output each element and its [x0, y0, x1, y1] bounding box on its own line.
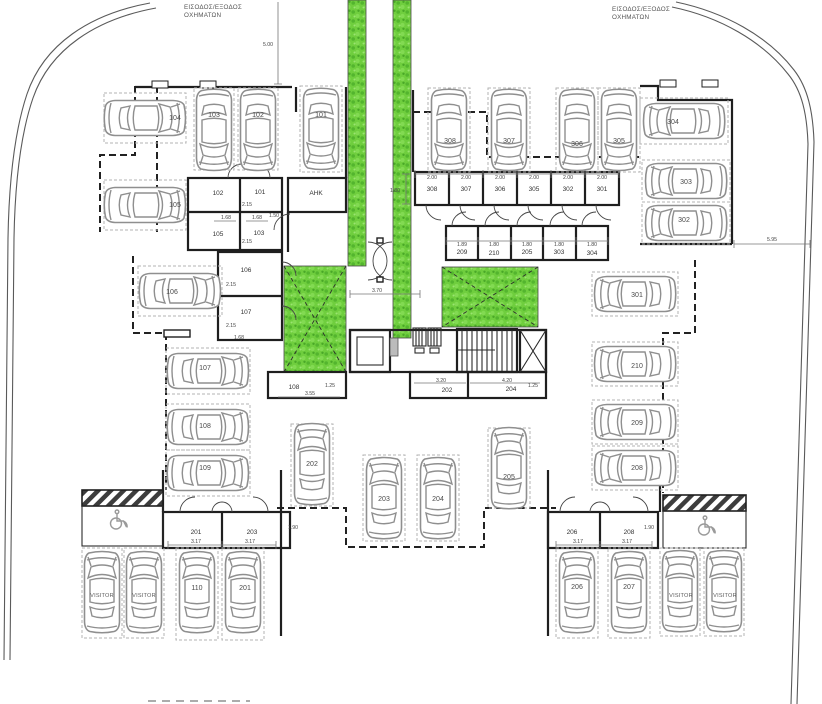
spot-label-102: 102 — [252, 112, 264, 119]
car-201 — [226, 552, 261, 633]
dim-1.90-2: 1.90 — [644, 525, 654, 531]
room-label-ahk: ΑΗΚ — [309, 190, 323, 197]
dim-1.80-1: 1.80 — [489, 242, 499, 248]
green-strip-left — [348, 0, 366, 266]
dim-5.00: 5.00 — [263, 42, 273, 48]
room-label-209: 209 — [457, 249, 468, 256]
dim-3.17-2: 3.17 — [245, 539, 255, 545]
car-106 — [139, 274, 220, 309]
doors — [180, 164, 648, 512]
spot-label-208: 208 — [631, 465, 643, 472]
entrance-label-right-2: ΟΧΗΜΑΤΩΝ — [612, 14, 649, 21]
dim-1.68-1: 1.68 — [221, 215, 231, 221]
car-304 — [644, 104, 725, 139]
wheelchair-icon-right — [699, 516, 716, 535]
green-courtyard-left — [284, 266, 346, 372]
car-110 — [180, 552, 215, 633]
room-label-101: 101 — [255, 189, 266, 196]
car-308 — [432, 89, 467, 170]
dim-2.00-4: 2.00 — [529, 175, 539, 181]
wheelchair-icon-left — [111, 510, 128, 529]
spot-label-visitor-4: VISITOR — [713, 593, 737, 599]
room-label-206: 206 — [567, 529, 578, 536]
dim-3.70: 3.70 — [372, 288, 382, 294]
dim-3.17-1: 3.17 — [191, 539, 201, 545]
spot-label-106: 106 — [166, 289, 178, 296]
dim-2.00-6: 2.00 — [597, 175, 607, 181]
room-label-105: 105 — [213, 231, 224, 238]
dim-2.15-2: 2.15 — [242, 239, 252, 245]
hatched-wall-left — [82, 490, 163, 506]
spot-label-308: 308 — [444, 138, 456, 145]
spot-label-204: 204 — [432, 496, 444, 503]
dim-2.00-1: 2.00 — [427, 175, 437, 181]
room-label-204: 204 — [506, 386, 517, 393]
car-205 — [492, 428, 527, 509]
spot-label-108: 108 — [199, 423, 211, 430]
spot-label-307: 307 — [503, 138, 515, 145]
spot-label-207: 207 — [623, 584, 635, 591]
dim-2.00-5: 2.00 — [563, 175, 573, 181]
spot-label-110: 110 — [191, 585, 202, 592]
car-visitor-3 — [663, 551, 698, 632]
spot-label-205: 205 — [503, 474, 515, 481]
dim-1.50: 1.50 — [269, 213, 279, 219]
stair-core — [350, 328, 546, 372]
car-109 — [167, 456, 248, 491]
meter-boxes — [413, 328, 441, 353]
dim-1.68-3: 1.68 — [234, 335, 244, 341]
room-label-205: 205 — [522, 249, 533, 256]
room-label-106: 106 — [241, 267, 252, 274]
room-label-103: 103 — [254, 230, 265, 237]
room-label-102: 102 — [213, 190, 224, 197]
room-label-303: 303 — [554, 249, 565, 256]
elevator-jamb — [390, 338, 398, 356]
dim-1.89: 1.89 — [457, 242, 467, 248]
dim-1.90-1: 1.90 — [288, 525, 298, 531]
room-label-305: 305 — [529, 186, 540, 193]
dim-2.15-1: 2.15 — [242, 202, 252, 208]
hatched-walls — [82, 490, 746, 548]
room-label-210: 210 — [489, 250, 500, 257]
dim-2.00-2: 2.00 — [461, 175, 471, 181]
dim-1.80-left: 1.80 — [390, 188, 400, 194]
car-206 — [560, 552, 595, 633]
dim-3.17-4: 3.17 — [622, 539, 632, 545]
car-visitor-4 — [707, 551, 742, 632]
spot-label-visitor-2: VISITOR — [132, 593, 156, 599]
elevator — [350, 330, 390, 372]
spot-label-306: 306 — [571, 141, 583, 148]
spot-label-203: 203 — [378, 496, 390, 503]
room-label-202: 202 — [442, 387, 453, 394]
room-label-302: 302 — [563, 186, 574, 193]
dim-2.00-3: 2.00 — [495, 175, 505, 181]
spot-label-209: 209 — [631, 420, 643, 427]
spot-label-109: 109 — [199, 465, 211, 472]
room-label-304: 304 — [587, 250, 598, 257]
room-label-306: 306 — [495, 186, 506, 193]
spot-label-visitor-1: VISITOR — [90, 593, 114, 599]
spot-label-103: 103 — [208, 112, 220, 119]
pedestrian-gate — [368, 238, 392, 282]
dim-1.25-2: 1.25 — [528, 383, 538, 389]
spot-label-104: 104 — [169, 115, 181, 122]
car-207 — [612, 552, 647, 633]
floor-plan-sheet: ΕΙΣΟΔΟΣ/ΕΞΟΔΟΣ ΟΧΗΜΑΤΩΝ ΕΙΣΟΔΟΣ/ΕΞΟΔΟΣ Ο… — [0, 0, 822, 704]
dim-1.68-2: 1.68 — [252, 215, 262, 221]
room-label-208: 208 — [624, 529, 635, 536]
room-label-107: 107 — [241, 309, 252, 316]
spot-label-visitor-3: VISITOR — [669, 593, 693, 599]
room-label-301: 301 — [597, 186, 608, 193]
entrance-label-left-1: ΕΙΣΟΔΟΣ/ΕΞΟΔΟΣ — [184, 4, 242, 11]
dim-3.17-3: 3.17 — [573, 539, 583, 545]
green-strip-right — [393, 0, 411, 338]
car-306 — [560, 89, 595, 170]
car-101 — [304, 88, 339, 169]
spot-label-210: 210 — [631, 363, 643, 370]
spot-label-107: 107 — [199, 365, 211, 372]
entrance-label-left-2: ΟΧΗΜΑΤΩΝ — [184, 12, 221, 19]
car-102 — [241, 89, 276, 170]
hatched-wall-right — [663, 495, 746, 511]
car-305 — [602, 89, 637, 170]
dim-3.55: 3.55 — [305, 391, 315, 397]
spot-label-201: 201 — [239, 585, 251, 592]
spot-label-105: 105 — [169, 202, 181, 209]
dim-1.25-1: 1.25 — [325, 383, 335, 389]
car-103 — [197, 89, 232, 170]
dim-2.15-4: 2.15 — [226, 323, 236, 329]
room-label-203: 203 — [247, 529, 258, 536]
dim-4.20: 4.20 — [502, 378, 512, 384]
dim-1.80-2: 1.80 — [522, 242, 532, 248]
spot-label-206: 206 — [571, 584, 583, 591]
spot-label-101: 101 — [315, 112, 327, 119]
room-label-201: 201 — [191, 529, 202, 536]
spot-label-302: 302 — [678, 217, 690, 224]
entrance-label-right-1: ΕΙΣΟΔΟΣ/ΕΞΟΔΟΣ — [612, 6, 670, 13]
spot-label-301: 301 — [631, 292, 643, 299]
dim-2.15-3: 2.15 — [226, 282, 236, 288]
dim-1.80-4: 1.80 — [587, 242, 597, 248]
spot-label-303: 303 — [680, 179, 692, 186]
parking-floor-plan: ΕΙΣΟΔΟΣ/ΕΞΟΔΟΣ ΟΧΗΜΑΤΩΝ ΕΙΣΟΔΟΣ/ΕΞΟΔΟΣ Ο… — [0, 0, 822, 704]
room-label-308: 308 — [427, 186, 438, 193]
spot-label-305: 305 — [613, 138, 625, 145]
spot-label-304: 304 — [667, 119, 679, 126]
spot-label-202: 202 — [306, 461, 318, 468]
car-307 — [492, 89, 527, 170]
room-label-307: 307 — [461, 186, 472, 193]
dim-3.20: 3.20 — [436, 378, 446, 384]
dim-1.80-3: 1.80 — [554, 242, 564, 248]
dim-5.95: 5.95 — [767, 237, 777, 243]
room-label-108: 108 — [289, 384, 300, 391]
